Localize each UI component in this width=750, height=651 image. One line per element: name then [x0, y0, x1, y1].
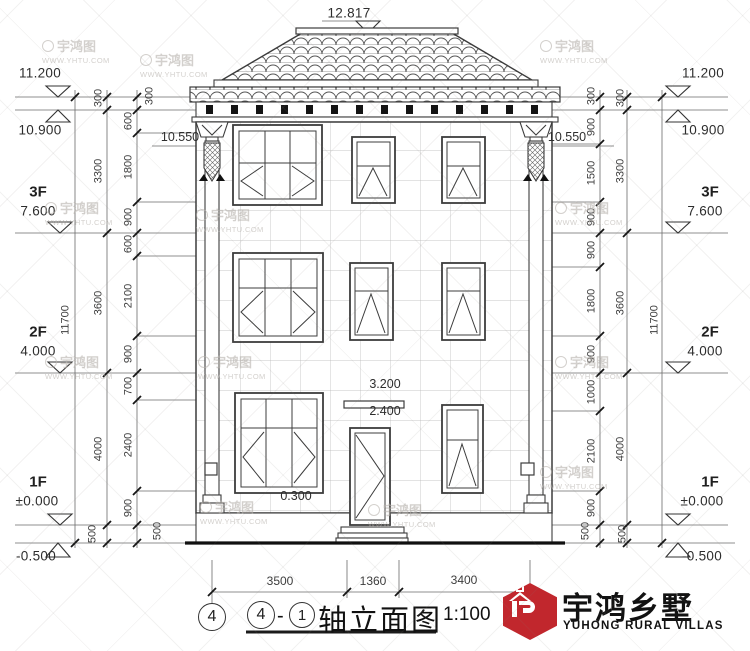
- elevation-drawing-sheet: 12.817 11.200 10.900 3F 7.600 2F 4.000 1…: [0, 0, 750, 651]
- dim-left-overall: 11700: [61, 305, 72, 335]
- rainwater-box-left: [205, 463, 217, 475]
- axis-bubble-number: 4: [208, 608, 217, 626]
- floor-label-right-3f: 3F: [701, 185, 719, 200]
- cornice-level-left: 10.550: [161, 131, 199, 144]
- dim-right-detail-8: 2100: [587, 439, 598, 463]
- dim-left-floor-0: 300: [94, 89, 105, 107]
- dim-left-floor-3: 4000: [94, 437, 105, 461]
- window-2f-center: [350, 263, 393, 340]
- window-2f-large: [233, 253, 323, 342]
- dim-right-detail-5: 1800: [587, 289, 598, 313]
- dim-left-detail-7: 700: [124, 377, 135, 395]
- level-left-parapet: 11.200: [19, 66, 61, 80]
- dim-left-detail-1: 600: [124, 112, 135, 130]
- door-top-level: 2.400: [369, 405, 400, 418]
- dim-right-floor-3: 4000: [616, 437, 627, 461]
- dim-right-detail-1: 900: [587, 118, 598, 136]
- level-right-1f: ±0.000: [681, 494, 724, 508]
- dim-right-detail-4: 900: [587, 241, 598, 259]
- dim-right-detail-2: 1500: [587, 161, 598, 185]
- elevation-linework: [0, 0, 750, 651]
- level-left-cornice: 10.900: [18, 123, 61, 137]
- title-axis-to: 1: [289, 602, 315, 628]
- axis-bubble: 4: [198, 603, 226, 631]
- dim-bottom-0: 3500: [267, 575, 294, 587]
- level-right-parapet: 11.200: [682, 66, 724, 80]
- dim-right-detail-10: 500: [581, 522, 592, 540]
- dim-left-detail-5: 2100: [124, 284, 135, 308]
- dim-right-detail-6: 900: [587, 345, 598, 363]
- dim-right-detail-7: 1000: [587, 380, 598, 404]
- dim-left-detail-9: 900: [124, 499, 135, 517]
- dim-right-floor-0: 300: [616, 89, 627, 107]
- dim-right-detail-3: 900: [587, 208, 598, 226]
- dim-left-floor-4: 500: [88, 525, 99, 543]
- title-axis-to-number: 1: [298, 607, 306, 624]
- logo-name-en: YUHONG RURAL VILLAS: [563, 620, 724, 632]
- dim-right-floor-2: 3600: [616, 291, 627, 315]
- level-left-1f: ±0.000: [16, 494, 59, 508]
- level-right-ground: -0.500: [682, 549, 722, 563]
- dim-right-detail-9: 900: [587, 499, 598, 517]
- title-axis-from-number: 4: [257, 606, 266, 624]
- dim-left-floor-2: 3600: [94, 291, 105, 315]
- dim-right-detail-0: 300: [587, 87, 598, 105]
- dim-left-detail-10: 500: [153, 522, 164, 540]
- dim-left-detail-4: 600: [124, 235, 135, 253]
- level-right-cornice: 10.900: [681, 123, 724, 137]
- ridge-level-value: 12.817: [327, 6, 370, 20]
- window-3f-center: [352, 137, 395, 203]
- level-right-2f: 4.000: [687, 344, 722, 358]
- title-axis-separator: -: [277, 605, 284, 628]
- dentil-band: [196, 102, 552, 117]
- canopy-level: 3.200: [369, 378, 400, 391]
- dim-left-detail-2: 1800: [124, 155, 135, 179]
- dim-left-detail-6: 900: [124, 345, 135, 363]
- sill-level: 0.300: [280, 490, 311, 503]
- window-3f-right: [442, 137, 485, 203]
- cornice-level-right: 10.550: [548, 131, 586, 144]
- level-right-3f: 7.600: [687, 204, 722, 218]
- dim-right-overall: 11700: [650, 305, 661, 335]
- floor-label-left-1f: 1F: [29, 475, 47, 490]
- dim-bottom-2: 3400: [451, 574, 478, 586]
- window-1f-large: [235, 393, 323, 493]
- dim-left-detail-3: 900: [124, 208, 135, 226]
- dim-left-detail-0: 300: [145, 87, 156, 105]
- entry-steps: [336, 527, 408, 543]
- window-3f-large: [233, 125, 322, 205]
- hip-roof: [222, 33, 532, 80]
- rainwater-box-right: [521, 463, 534, 475]
- dim-right-floor-1: 3300: [616, 159, 627, 183]
- title-axis-from: 4: [247, 601, 275, 629]
- dim-right-floor-4: 500: [618, 525, 629, 543]
- drawing-title: 轴立面图: [318, 597, 442, 639]
- eaves-tile-band: [190, 87, 560, 102]
- level-left-ground: -0.500: [16, 549, 56, 563]
- level-left-2f: 4.000: [20, 344, 55, 358]
- floor-label-right-1f: 1F: [701, 475, 719, 490]
- level-left-3f: 7.600: [20, 204, 55, 218]
- dim-bottom-1: 1360: [360, 575, 387, 587]
- floor-label-left-2f: 2F: [29, 325, 47, 340]
- window-2f-right: [442, 263, 485, 340]
- floor-label-right-2f: 2F: [701, 325, 719, 340]
- entry-door: [350, 428, 390, 525]
- dim-left-floor-1: 3300: [94, 159, 105, 183]
- drawing-scale: 1:100: [443, 604, 491, 626]
- window-1f-right: [442, 405, 483, 493]
- dim-left-detail-8: 2400: [124, 433, 135, 457]
- roof-ridge-cap: [296, 28, 458, 34]
- floor-label-left-3f: 3F: [29, 185, 47, 200]
